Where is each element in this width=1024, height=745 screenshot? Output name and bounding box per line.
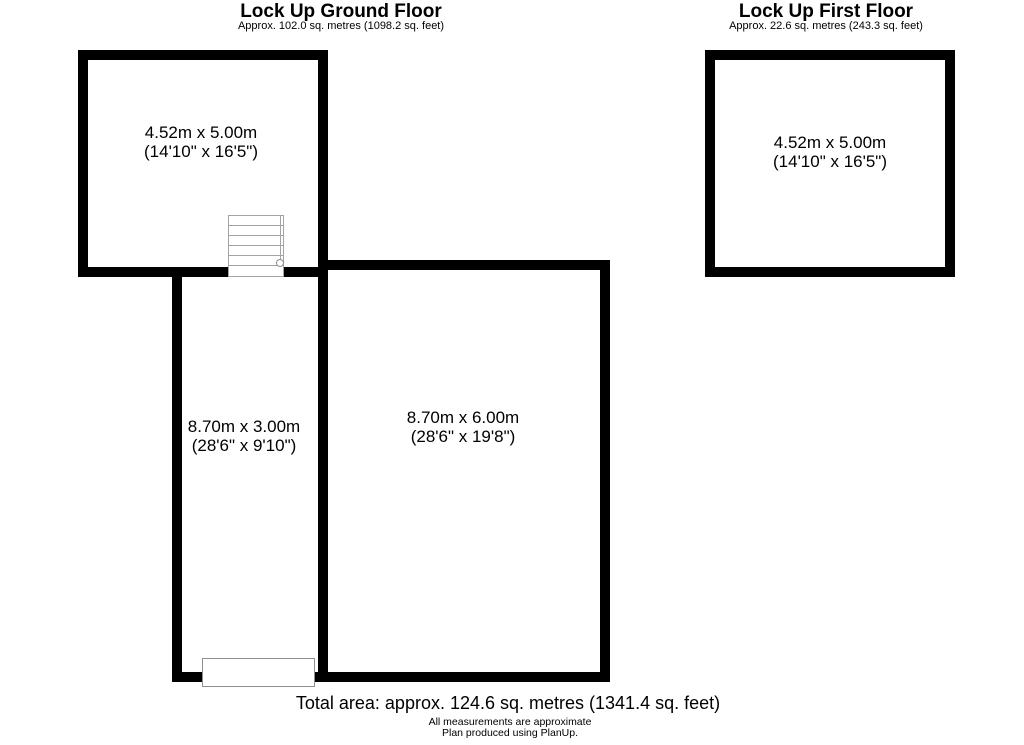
- stair-tread: [229, 235, 283, 236]
- room-label-ground-left: 8.70m x 3.00m (28'6" x 9'10"): [188, 417, 300, 455]
- room-label-ground-main: 8.70m x 6.00m (28'6" x 19'8"): [407, 408, 519, 446]
- stair-tread: [229, 265, 283, 266]
- stair-tread: [229, 225, 283, 226]
- room-dims-metric: 8.70m x 6.00m: [407, 408, 519, 427]
- ground-floor-subtitle: Approx. 102.0 sq. metres (1098.2 sq. fee…: [238, 20, 444, 32]
- ground-floor-room-left: [172, 267, 328, 682]
- room-dims-imperial: (14'10" x 16'5"): [144, 142, 258, 161]
- room-dims-imperial: (28'6" x 9'10"): [188, 436, 300, 455]
- stair-tread: [229, 255, 283, 256]
- floor-plan-page: Lock Up Ground Floor Approx. 102.0 sq. m…: [0, 0, 1024, 745]
- room-dims-metric: 4.52m x 5.00m: [144, 123, 258, 142]
- stairs-icon: [228, 215, 284, 277]
- stair-tread: [229, 245, 283, 246]
- room-label-ground-top: 4.52m x 5.00m (14'10" x 16'5"): [144, 123, 258, 161]
- stair-rail: [280, 216, 281, 263]
- total-area-text: Total area: approx. 124.6 sq. metres (13…: [296, 693, 720, 714]
- room-label-first-main: 4.52m x 5.00m (14'10" x 16'5"): [773, 133, 887, 171]
- room-dims-metric: 4.52m x 5.00m: [773, 133, 887, 152]
- ground-floor-room-main: [318, 260, 610, 682]
- ground-floor-room-top: [78, 50, 328, 277]
- room-dims-imperial: (28'6" x 19'8"): [407, 427, 519, 446]
- first-floor-subtitle: Approx. 22.6 sq. metres (243.3 sq. feet): [729, 20, 923, 32]
- room-dims-imperial: (14'10" x 16'5"): [773, 152, 887, 171]
- stair-newel-circle: [276, 259, 284, 267]
- credit-text: Plan produced using PlanUp.: [442, 728, 578, 739]
- room-dims-metric: 8.70m x 3.00m: [188, 417, 300, 436]
- door-opening: [202, 658, 315, 687]
